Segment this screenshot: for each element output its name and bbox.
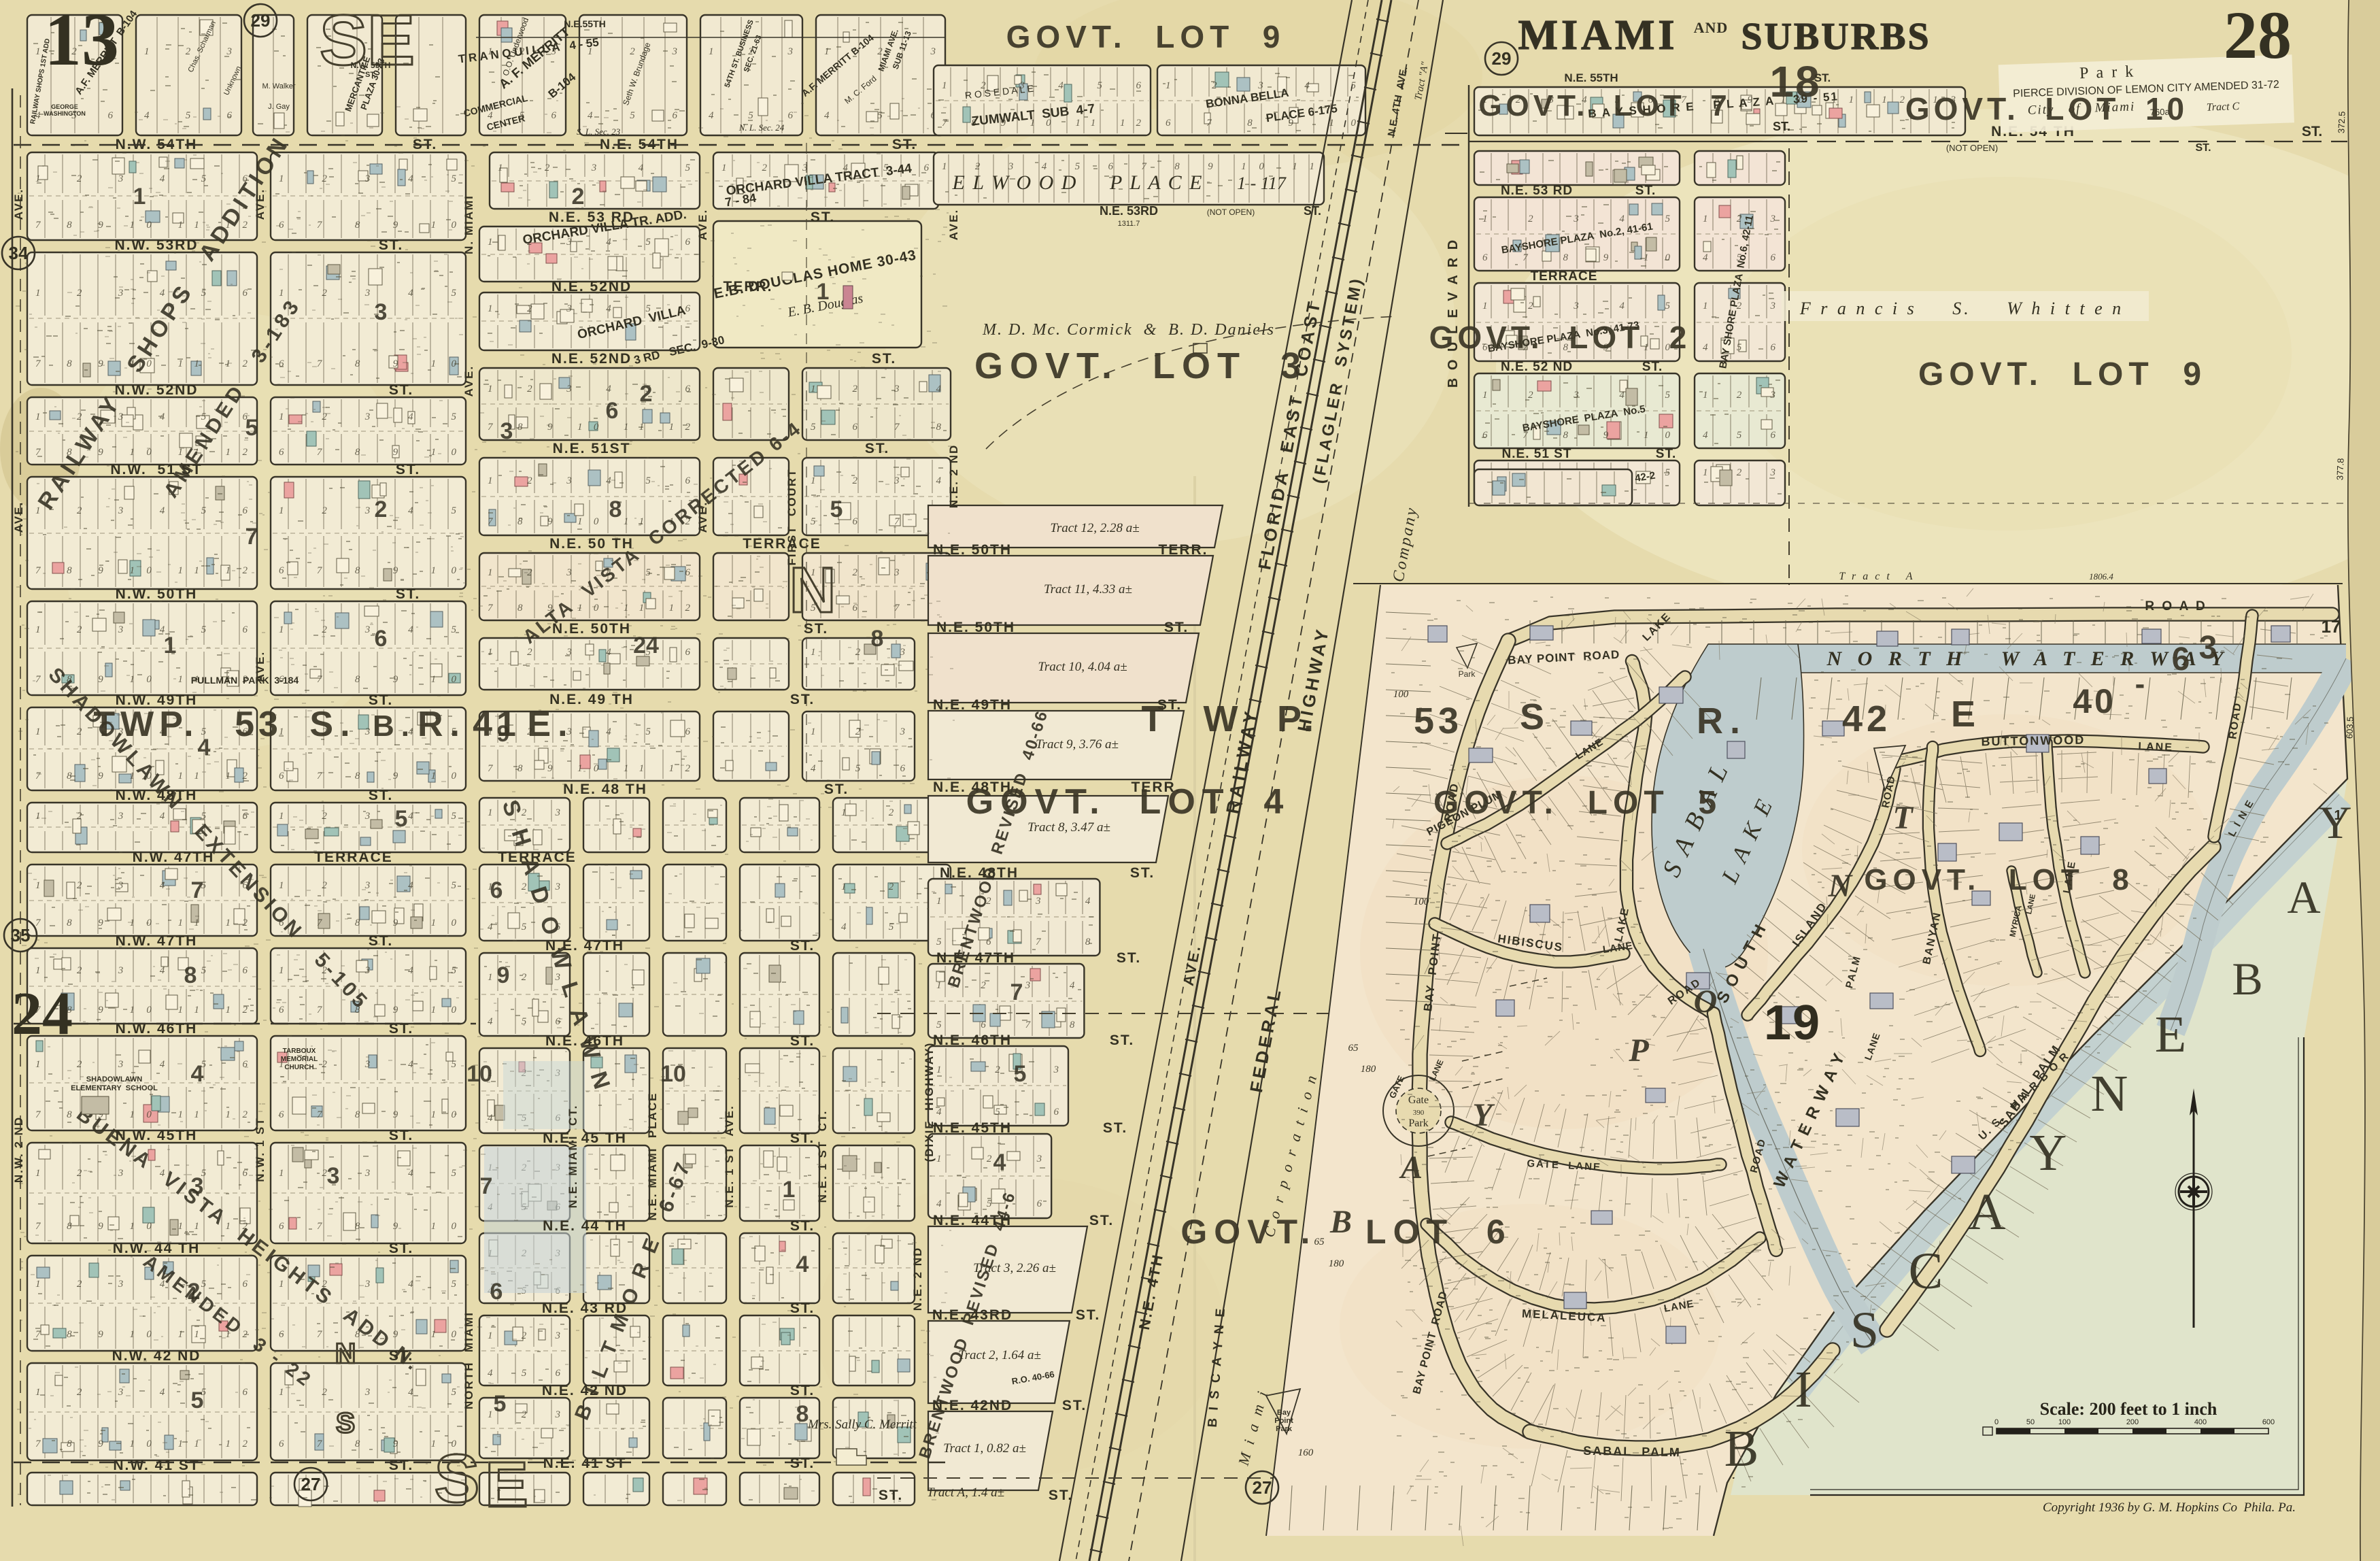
- svg-text:50: 50: [2026, 1418, 2035, 1426]
- svg-text:377.8: 377.8: [2334, 458, 2345, 480]
- svg-text:Copyright 1936 by G. M. Hopkin: Copyright 1936 by G. M. Hopkins Co Phila…: [2043, 1500, 2296, 1515]
- svg-text:372.5: 372.5: [2336, 111, 2347, 133]
- svg-text:603.5: 603.5: [2344, 716, 2355, 739]
- svg-text:0: 0: [1994, 1418, 1999, 1426]
- svg-text:400: 400: [2194, 1418, 2207, 1426]
- svg-text:200: 200: [2126, 1418, 2139, 1426]
- svg-text:600: 600: [2262, 1418, 2275, 1426]
- svg-text:100: 100: [2058, 1418, 2071, 1426]
- svg-text:Scale: 200 feet to 1 inch: Scale: 200 feet to 1 inch: [2040, 1399, 2217, 1419]
